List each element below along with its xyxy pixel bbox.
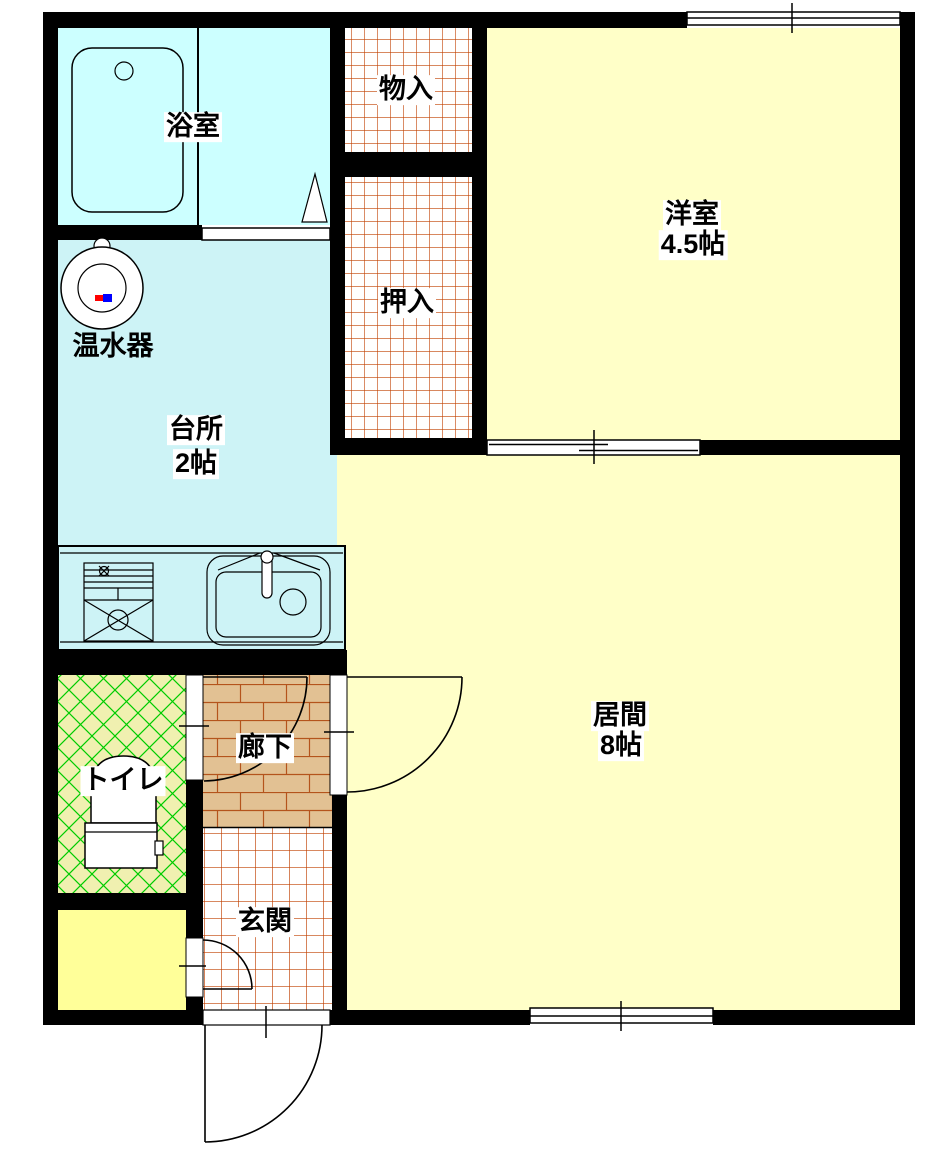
room-size-western-room: 4.5帖 xyxy=(659,230,728,260)
floor-plan-drawing xyxy=(0,0,942,1156)
storeroom-floor xyxy=(58,910,186,1010)
room-size-kitchen: 2帖 xyxy=(173,449,219,479)
kitchen-counter xyxy=(58,546,345,650)
entrance-threshold xyxy=(203,1006,330,1038)
room-label-water-heater: 温水器 xyxy=(71,332,156,362)
room-label-corridor: 廊下 xyxy=(236,733,294,763)
room-label-storage: 物入 xyxy=(377,75,435,105)
room-size-living-room: 8帖 xyxy=(598,731,644,761)
room-label-closet: 押入 xyxy=(378,288,436,318)
room-label-toilet: トイレ xyxy=(81,766,166,796)
entrance-door-swing xyxy=(205,1025,322,1142)
bathroom-sliding-door xyxy=(202,228,330,240)
room-label-western-room: 洋室 xyxy=(663,200,721,230)
room-label-living-room: 居間 xyxy=(591,701,649,731)
room-label-entrance: 玄関 xyxy=(236,907,294,937)
room-label-bathroom: 浴室 xyxy=(164,112,222,142)
room-label-kitchen: 台所 xyxy=(167,415,225,445)
floor-plan: 浴室 温水器 台所 2帖 物入 押入 洋室 4.5帖 居間 8帖 トイレ 廊下 … xyxy=(0,0,942,1156)
